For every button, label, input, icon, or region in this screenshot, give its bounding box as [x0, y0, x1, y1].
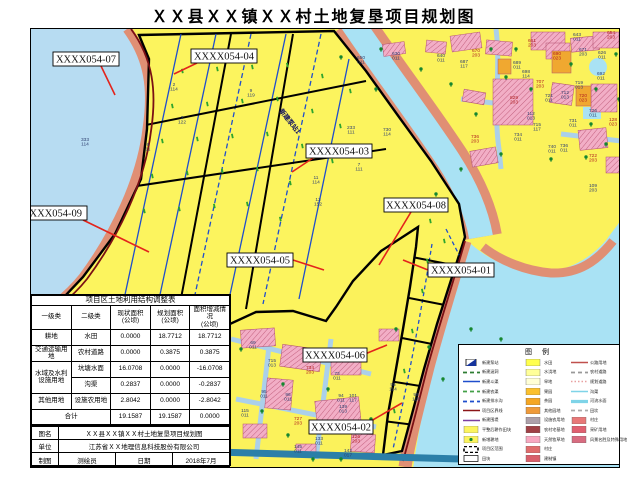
label-text: XXXX054-06 — [305, 351, 365, 362]
legend-item: 沟渠 — [571, 387, 619, 397]
legend-item-label: 旱地 — [544, 379, 552, 385]
parcel-number: 719013 — [575, 80, 583, 91]
田块-symbol — [463, 455, 480, 462]
legend-item: 公路用地 — [571, 358, 619, 368]
parcel-number: 661203 — [528, 38, 536, 49]
table-header: 规划面积 (公顷) — [150, 305, 190, 329]
signature-row: 制图测绘员日期2018年7月 — [32, 453, 230, 467]
label-text: XXXX054-01 — [431, 266, 491, 277]
table-total-row: 合计19.158719.15870.0000 — [32, 409, 230, 424]
legend-item: 新建围堤 — [463, 416, 523, 426]
parcel-number: 734011 — [514, 132, 522, 143]
新建斗渠-symbol — [463, 378, 480, 385]
legend-item-label: 田块 — [482, 456, 490, 462]
signature-row: 单位江苏省ＸＸ地理信息科技股份有限公司 — [32, 440, 230, 453]
legend-item-label: 水浇地 — [544, 370, 556, 376]
茶园-symbol — [525, 398, 542, 405]
legend-item: 果园 — [525, 387, 569, 397]
legend-column-2: 水田水浇地旱地果园茶园其他园地设施农用地农村宅基地天然牧草地村庄建制镇 — [525, 358, 569, 464]
parcel-number: 712013 — [561, 90, 569, 101]
parcel-number: 829203 — [510, 95, 518, 106]
农村宅基地-symbol — [525, 426, 542, 433]
page-title: ＸＸ县ＸＸ镇ＸＸ村土地复垦项目规划图 — [0, 3, 627, 27]
legend-item-label: 设施农用地 — [544, 418, 565, 424]
legend-item: 村庄 — [525, 444, 569, 454]
parcel-number: 650011 — [357, 55, 365, 66]
新建围堤-symbol — [463, 417, 480, 424]
parcel-number: 730114 — [383, 127, 391, 138]
新建涵洞-symbol — [463, 369, 480, 376]
legend-item: 天然牧草地 — [525, 435, 569, 445]
legend-item-label: 新建围堤 — [482, 418, 499, 424]
parcel-number: 126203 — [352, 434, 360, 445]
新增耕地-symbol — [463, 436, 480, 443]
沟渠-symbol — [571, 388, 588, 395]
legend-item-label: 农村道路 — [590, 370, 607, 376]
parcel-number: 736203 — [471, 134, 479, 145]
legend-item-label: 茶园 — [544, 398, 552, 404]
parcel-number: 715117 — [533, 122, 541, 133]
signature-block: 图名ＸＸ县ＸＸ镇ＸＸ村土地复垦项目规划图单位江苏省ＸＸ地理信息科技股份有限公司制… — [30, 425, 231, 466]
legend-column-3: 公路用地农村道路规划道路沟渠河流水面田坎村庄采矿用地风景名胜及特殊用地 — [571, 358, 619, 444]
项目区范围-symbol — [463, 446, 480, 453]
table-row: 交通运输用地农村道路0.00000.38750.3875 — [32, 345, 230, 361]
parcel-number: 109203 — [589, 183, 597, 194]
parcel-number: 112013 — [527, 111, 535, 122]
parcel-number: 133011 — [315, 436, 323, 447]
parcel-number: 640011 — [437, 53, 445, 64]
parcel-number: 726011 — [589, 108, 597, 119]
legend-item: 茶园 — [525, 396, 569, 406]
parcel-number: 707203 — [536, 79, 544, 90]
parcel-number: 671203 — [579, 47, 587, 58]
新建农渠-symbol — [463, 388, 480, 395]
parcel-number: 722203 — [589, 153, 597, 164]
parcel-number: 692011 — [597, 71, 605, 82]
村庄-symbol — [525, 446, 542, 453]
table-header: 现状面积 (公顷) — [111, 305, 151, 329]
legend-item-label: 建制镇 — [544, 456, 556, 462]
legend-item-label: 公路用地 — [590, 360, 607, 366]
table-header: 面积增减情况 (公顷) — [190, 305, 230, 329]
parcel-number: 740011 — [548, 144, 556, 155]
legend-item: 新建排水沟 — [463, 396, 523, 406]
legend-item: 项目区范围 — [463, 444, 523, 454]
legend-item: 田块 — [463, 454, 523, 464]
规划道路-symbol — [571, 378, 588, 385]
parcel-number: 101117 — [349, 393, 357, 404]
legend-item: 规划道路 — [571, 377, 619, 387]
legend-item: 水田 — [525, 358, 569, 368]
legend-item: 项目区界线 — [463, 406, 523, 416]
parcel-number: 139013 — [339, 404, 347, 415]
legend-item: 村庄 — [571, 416, 619, 426]
parcel-number: 333114 — [81, 137, 89, 148]
legend-item-label: 村庄 — [590, 418, 598, 424]
table-row: 其他用地设施农用地2.80420.0000-2.8042 — [32, 393, 230, 409]
parcel-number: 115011 — [241, 408, 249, 419]
label-text: XXXX054-08 — [386, 201, 446, 212]
legend-item: 新建斗渠 — [463, 377, 523, 387]
legend-item: 建制镇 — [525, 454, 569, 464]
风景名胜及特殊用地-symbol — [571, 436, 588, 443]
legend-item-label: 沟渠 — [590, 389, 598, 395]
其他园地-symbol — [525, 407, 542, 414]
legend-column-1: 新建泵站新建涵洞新建斗渠新建农渠新建排水沟项目区界线新建围堤平整后耕作田块新增耕… — [463, 358, 523, 464]
signature-row: 图名ＸＸ县ＸＸ镇ＸＸ村土地复垦项目规划图 — [32, 427, 230, 440]
村庄-symbol — [571, 417, 588, 424]
parcel-number: 727203 — [294, 416, 302, 427]
legend-item-label: 新建斗渠 — [482, 379, 499, 385]
parcel-number: 643011 — [573, 32, 581, 43]
legend-item: 新建泵站 — [463, 358, 523, 368]
parcel-number: 142017 — [344, 448, 352, 459]
legend-item: 水浇地 — [525, 368, 569, 378]
table-header: 二级类 — [71, 305, 111, 329]
label-text: XXXX054-07 — [56, 55, 116, 66]
legend-item-label: 项目区范围 — [482, 446, 503, 452]
legend-item-label: 村庄 — [544, 446, 552, 452]
legend-item: 河流水面 — [571, 396, 619, 406]
label-text: XXXX054-04 — [194, 52, 255, 63]
果园-symbol — [525, 388, 542, 395]
table-row: 耕地水田0.000018.771218.7712 — [32, 329, 230, 345]
水浇地-symbol — [525, 369, 542, 376]
table-header: 一级类 — [32, 305, 72, 329]
legend-item: 采矿用地 — [571, 425, 619, 435]
legend-title: 图 例 — [459, 347, 619, 357]
legend-item-label: 新建农渠 — [482, 389, 499, 395]
legend-item-label: 新建排水沟 — [482, 398, 503, 404]
legend-item-label: 平整后耕作田块 — [482, 427, 511, 433]
旱地-symbol — [525, 378, 542, 385]
legend-item-label: 风景名胜及特殊用地 — [590, 437, 627, 443]
parcel-number: 128023 — [609, 117, 617, 128]
parcel-number: 689011 — [513, 60, 521, 71]
legend-item-label: 项目区界线 — [482, 408, 503, 414]
parcel-number: 670203 — [472, 48, 480, 59]
legend-item-label: 新建泵站 — [482, 360, 499, 366]
公路用地-symbol — [571, 359, 588, 366]
采矿用地-symbol — [571, 426, 588, 433]
legend-item: 平整后耕作田块 — [463, 425, 523, 435]
legend-item: 旱地 — [525, 377, 569, 387]
legend-item-label: 水田 — [544, 360, 552, 366]
table-title: 项目区土地利用结构调整表 — [32, 296, 230, 306]
新建泵站-symbol — [463, 359, 480, 366]
label-text: XXXX054-02 — [311, 423, 371, 434]
田坎-symbol — [571, 407, 588, 414]
legend-item-label: 农村宅基地 — [544, 427, 565, 433]
parcel-number: 720023 — [579, 93, 587, 104]
parcel-number: 690023 — [553, 51, 561, 62]
legend-item-label: 采矿用地 — [590, 427, 607, 433]
parcel-number: 626011 — [598, 50, 606, 61]
legend-item: 新建涵洞 — [463, 368, 523, 378]
parcel-number: 734203 — [306, 365, 314, 376]
农村道路-symbol — [571, 369, 588, 376]
parcel-number: 721011 — [545, 93, 553, 104]
legend-item-label: 新增耕地 — [482, 437, 499, 443]
legend-item-label: 其他园地 — [544, 408, 561, 414]
parcel-number: 145011 — [294, 444, 302, 455]
legend-item: 新增耕地 — [463, 435, 523, 445]
新建排水沟-symbol — [463, 398, 480, 405]
legend-item-label: 果园 — [544, 389, 552, 395]
legend-item-label: 新建涵洞 — [482, 370, 499, 376]
parcel-number: 630011 — [392, 51, 400, 62]
table-row: 水域及水利设施用地坑塘水面16.07080.0000-16.0708 — [32, 361, 230, 377]
建制镇-symbol — [525, 455, 542, 462]
平整后耕作田块-symbol — [463, 426, 480, 433]
parcel-number: 233111 — [347, 125, 355, 136]
map-legend: 图 例 新建泵站新建涵洞新建斗渠新建农渠新建排水沟项目区界线新建围堤平整后耕作田… — [458, 344, 620, 465]
legend-item: 农村宅基地 — [525, 425, 569, 435]
legend-item: 风景名胜及特殊用地 — [571, 435, 619, 445]
设施农用地-symbol — [525, 417, 542, 424]
legend-item: 其他园地 — [525, 406, 569, 416]
legend-item-label: 天然牧草地 — [544, 437, 565, 443]
parcel-number: 687117 — [460, 59, 468, 70]
legend-item: 田坎 — [571, 406, 619, 416]
parcel-number: 731011 — [569, 118, 577, 129]
项目区界线-symbol — [463, 407, 480, 414]
parcel-number: 654203 — [607, 30, 615, 41]
parcel-number: 698114 — [522, 69, 530, 80]
label-text: XXXX054-05 — [230, 256, 290, 267]
label-text: XXXX054-09 — [31, 209, 82, 220]
legend-item-label: 河流水面 — [590, 398, 607, 404]
河流水面-symbol — [571, 398, 588, 405]
planning-map-sheet: ＸＸ县ＸＸ镇ＸＸ村土地复垦项目规划图 — [0, 0, 627, 478]
legend-item-label: 田坎 — [590, 408, 598, 414]
parcel-number: 736011 — [560, 143, 568, 154]
legend-item: 设施农用地 — [525, 416, 569, 426]
legend-item-label: 规划道路 — [590, 379, 607, 385]
天然牧草地-symbol — [525, 436, 542, 443]
parcel-number: 715013 — [268, 358, 276, 369]
legend-item: 新建农渠 — [463, 387, 523, 397]
land-use-adjustment-table: 项目区土地利用结构调整表一级类二级类现状面积 (公顷)规划面积 (公顷)面积增减… — [30, 294, 231, 425]
水田-symbol — [525, 359, 542, 366]
label-text: XXXX054-03 — [309, 147, 369, 158]
legend-item: 农村道路 — [571, 368, 619, 378]
